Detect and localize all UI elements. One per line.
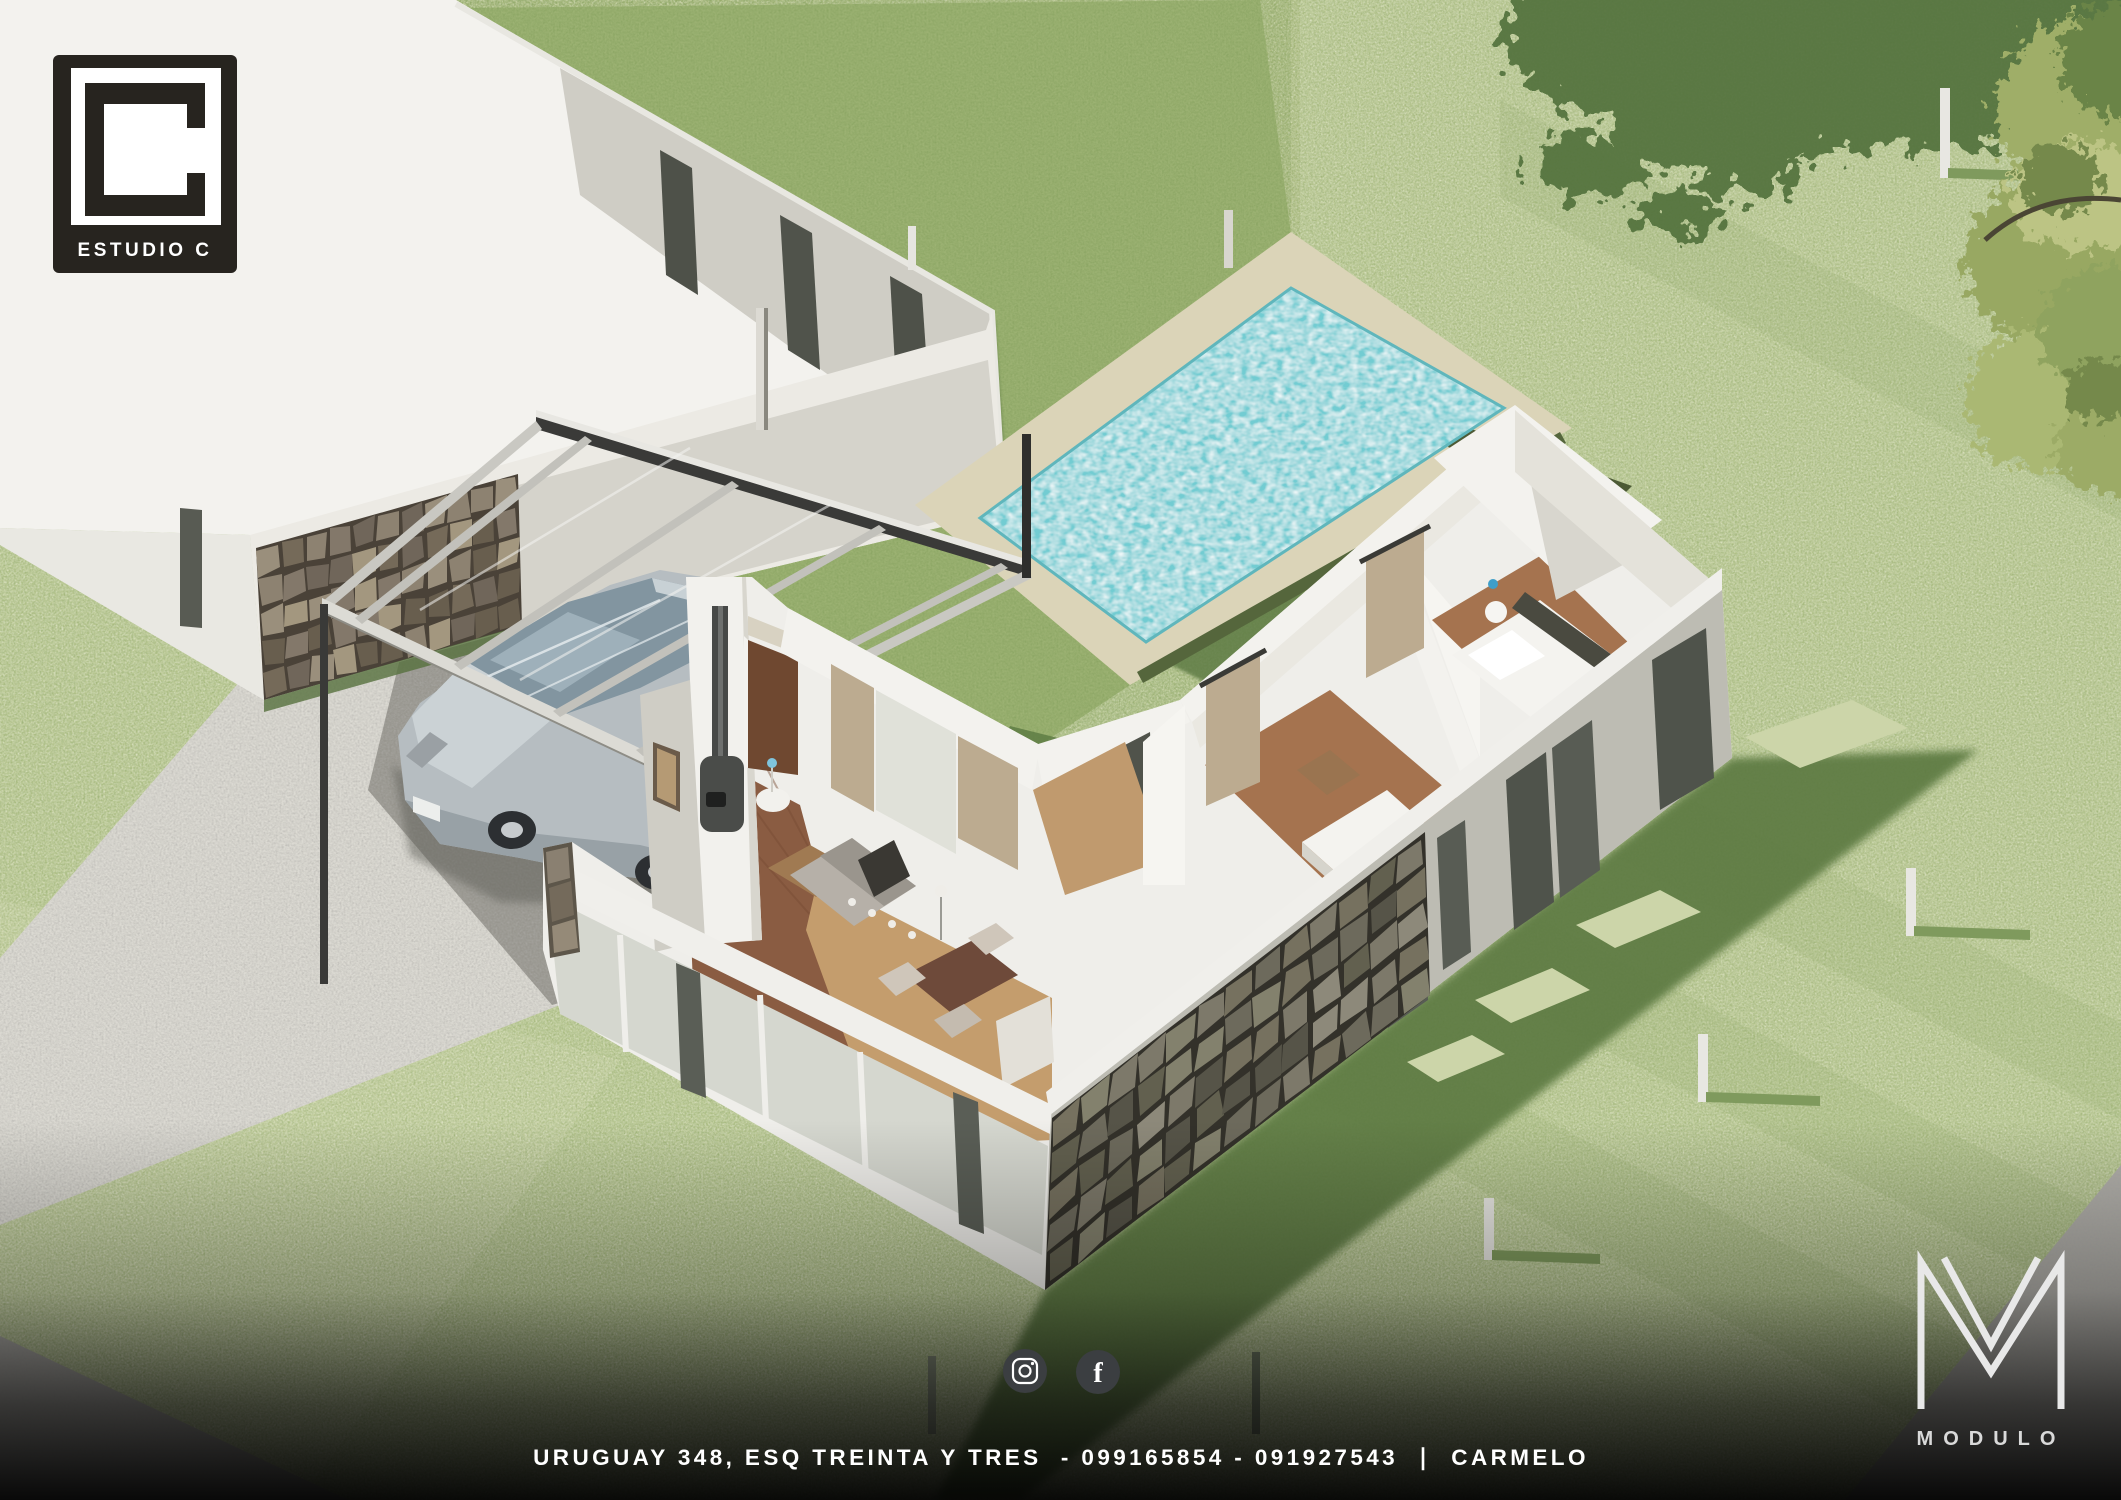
svg-text:URUGUAY 348, ESQ TREINTA Y TRE: URUGUAY 348, ESQ TREINTA Y TRES - 099165… (533, 1445, 1589, 1471)
svg-text:f: f (1093, 1358, 1103, 1389)
svg-text:MODULO: MODULO (1917, 1428, 2066, 1450)
svg-text:ESTUDIO C: ESTUDIO C (78, 240, 213, 261)
